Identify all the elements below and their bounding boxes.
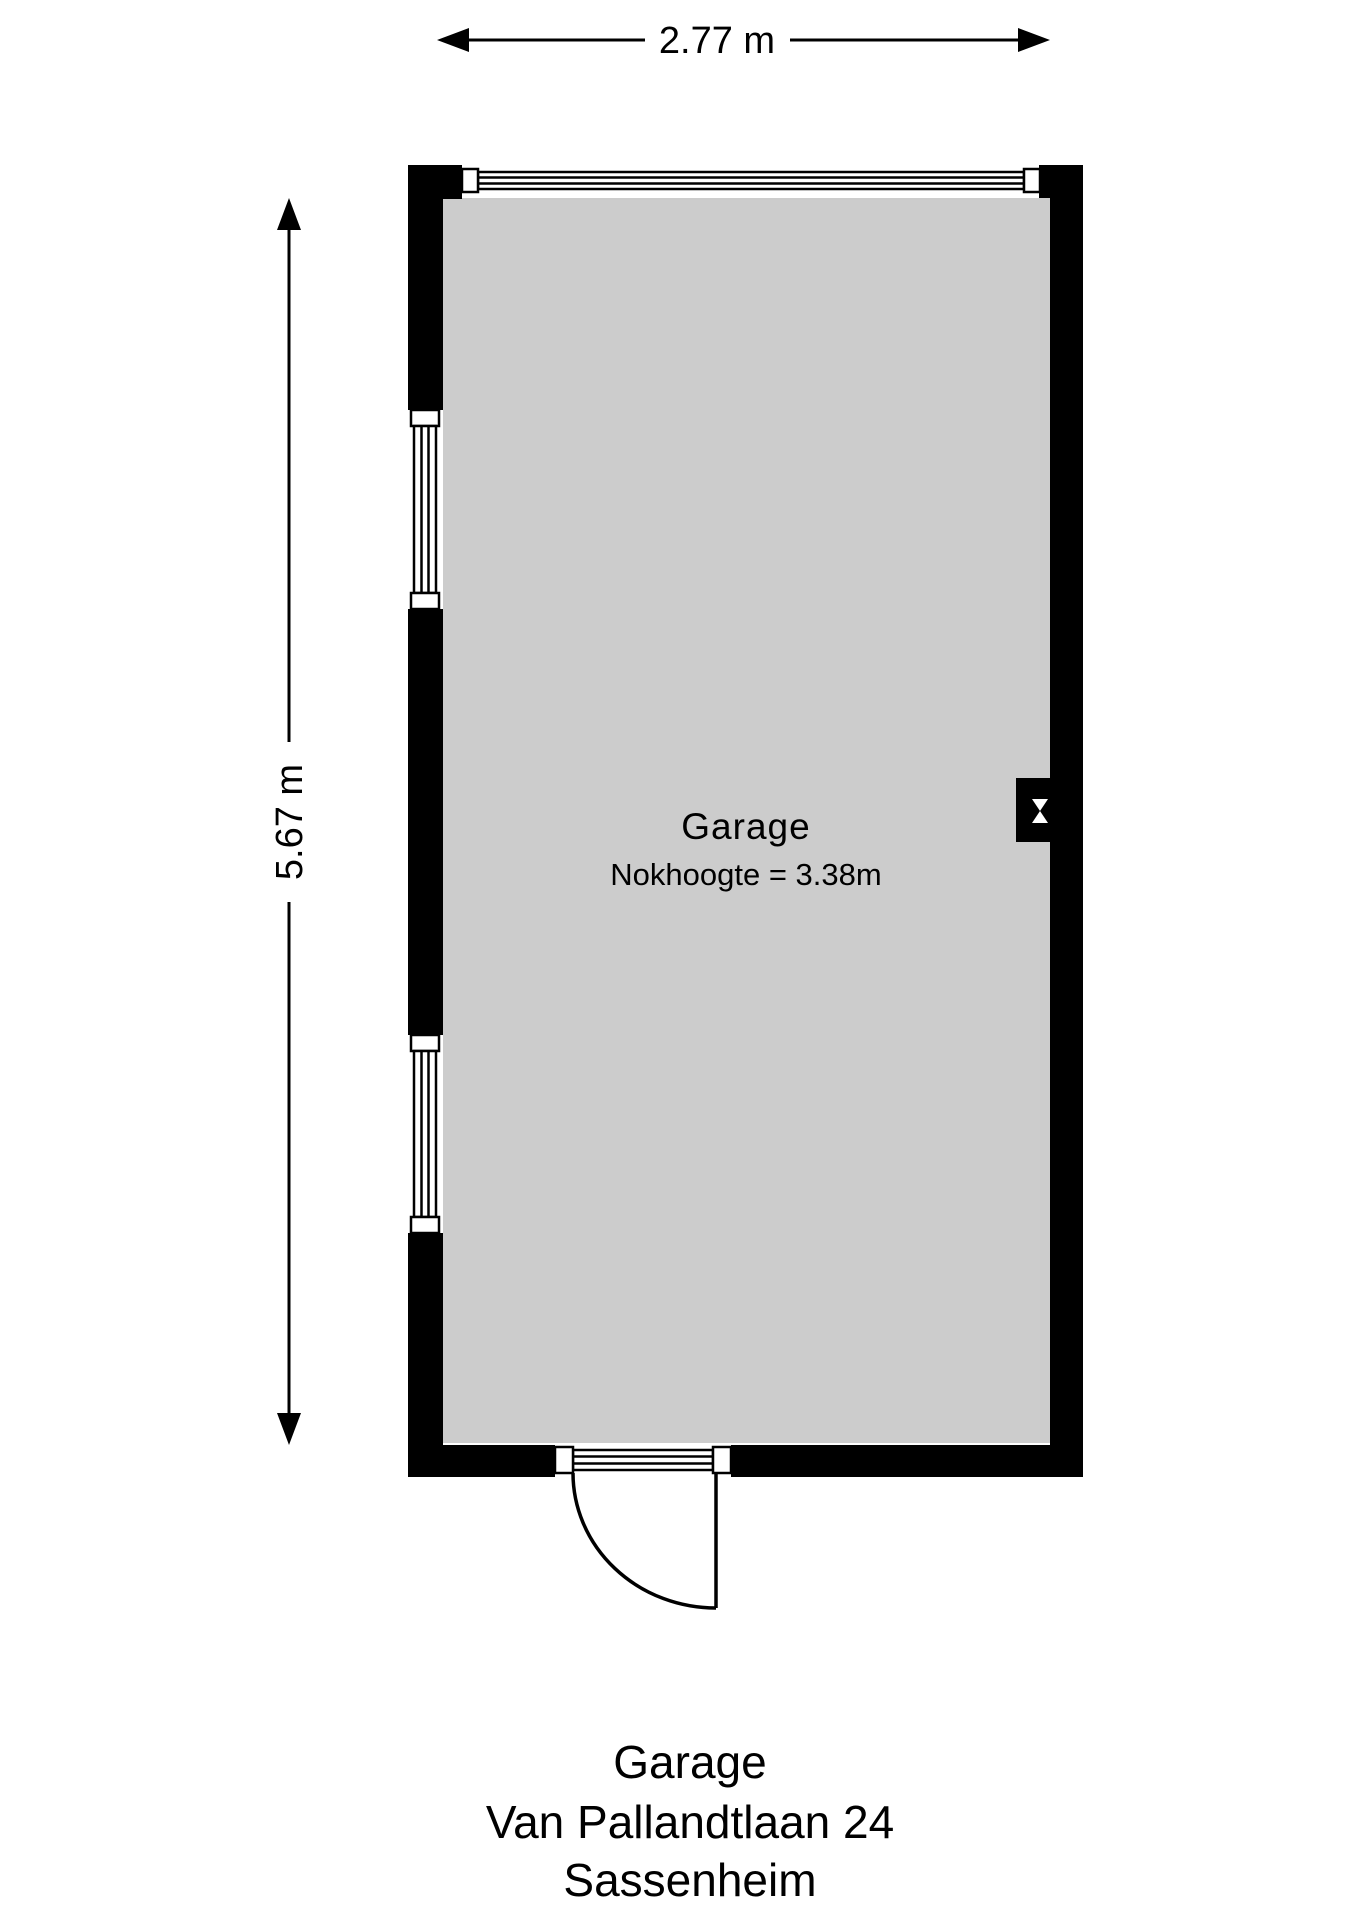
window-top-frame	[478, 172, 1024, 189]
wall-left-upper	[408, 165, 443, 410]
window-jamb-top	[411, 410, 439, 426]
door-jamb-right	[713, 1447, 731, 1473]
arrow-down-icon	[277, 1413, 301, 1445]
wall-right	[1050, 165, 1083, 1477]
window-jamb-bottom	[411, 1217, 439, 1233]
window-top-jamb-left	[462, 169, 478, 192]
wall-marker-icon	[1016, 778, 1052, 842]
dimension-top-label: 2.77 m	[659, 20, 775, 62]
room-name-label: Garage	[681, 806, 810, 847]
floorplan-page: 2.77 m 5.67 m	[0, 0, 1358, 1920]
dimension-left-label: 5.67 m	[269, 764, 311, 880]
wall-marker-box	[1016, 778, 1052, 842]
window-frame	[414, 426, 436, 593]
door-icon	[555, 1447, 731, 1608]
dimension-left: 5.67 m	[269, 198, 311, 1445]
caption-line-1: Garage	[613, 1736, 766, 1788]
window-jamb-bottom	[411, 593, 439, 609]
dimension-top: 2.77 m	[437, 20, 1050, 62]
door-swing-arc	[573, 1473, 716, 1608]
wall-bottom-left	[408, 1445, 555, 1477]
caption-line-2: Van Pallandtlaan 24	[486, 1796, 894, 1848]
floor-plan: 2.77 m 5.67 m	[0, 0, 1358, 1920]
room-detail-label: Nokhoogte = 3.38m	[610, 857, 881, 892]
window-frame	[414, 1051, 436, 1217]
door-band	[573, 1450, 713, 1470]
wall-left-lower	[408, 1233, 443, 1477]
window-top-jamb-right	[1024, 169, 1040, 192]
window-top-icon	[462, 169, 1040, 192]
window-jamb-top	[411, 1035, 439, 1051]
wall-bottom-right	[731, 1445, 1083, 1477]
caption-line-3: Sassenheim	[563, 1854, 816, 1906]
door-jamb-left	[555, 1447, 573, 1473]
arrow-right-icon	[1018, 28, 1050, 52]
caption: Garage Van Pallandtlaan 24 Sassenheim	[486, 1736, 894, 1906]
wall-left-middle	[408, 609, 443, 1035]
window-left-upper-icon	[411, 410, 439, 609]
window-left-lower-icon	[411, 1035, 439, 1233]
